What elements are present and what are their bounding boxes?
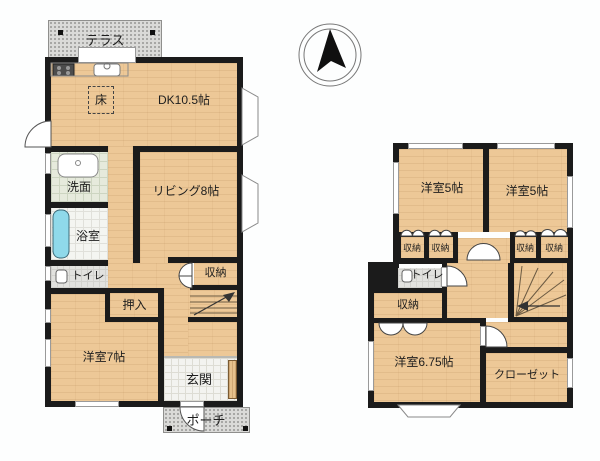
- porch-post: [243, 426, 248, 431]
- window: [45, 153, 51, 174]
- wall: [190, 285, 237, 290]
- living-floor: [140, 152, 237, 257]
- wall: [45, 260, 108, 266]
- compass-north-icon: [299, 24, 361, 86]
- closet-top-label: 収納: [514, 243, 536, 254]
- hall-floor: [188, 322, 237, 358]
- bay-window: [242, 175, 258, 232]
- porch-post: [167, 426, 172, 431]
- bay-window: [242, 88, 258, 145]
- window: [408, 143, 463, 149]
- washroom-label: 洗面: [53, 180, 105, 194]
- landing-floor: [458, 238, 510, 264]
- western675-label: 洋室6.75帖: [376, 354, 472, 369]
- window: [45, 214, 51, 247]
- wall: [168, 257, 243, 263]
- storage1f-label: 収納: [194, 267, 237, 280]
- door-opening: [45, 121, 51, 147]
- terrace-post: [58, 30, 63, 35]
- window: [75, 401, 119, 407]
- wall: [374, 288, 447, 293]
- closet-top-label: 収納: [428, 243, 453, 254]
- wall: [133, 146, 243, 152]
- entrance-step: [164, 356, 237, 358]
- wall: [368, 402, 573, 408]
- wall: [45, 288, 111, 294]
- stairs2f-floor: [514, 263, 567, 317]
- wall: [133, 146, 140, 263]
- hall-floor: [164, 288, 190, 317]
- hall2f-floor: [486, 322, 567, 347]
- window: [45, 309, 51, 323]
- living-label: リビング8帖: [134, 183, 238, 198]
- terrace-post: [150, 30, 155, 35]
- wall: [508, 317, 573, 322]
- entrance-door-opening: [180, 401, 204, 407]
- window: [567, 358, 573, 388]
- wall: [237, 57, 243, 407]
- stairs1f-floor: [190, 290, 237, 317]
- shoe-cabinet: [228, 360, 237, 399]
- wall: [508, 263, 514, 322]
- closet-top-label: 収納: [540, 243, 568, 254]
- door-opening: [480, 326, 486, 346]
- toilet2f-label: トイレ: [410, 269, 444, 282]
- western5-left-label: 洋室5帖: [403, 180, 481, 195]
- hall2f-floor: [447, 263, 508, 318]
- corridor-floor: [108, 146, 133, 263]
- western7-label: 洋室7帖: [58, 349, 150, 365]
- wall: [480, 347, 573, 353]
- terrace-label: テラス: [70, 32, 140, 48]
- toilet1f-label: トイレ: [66, 270, 110, 283]
- porch-label: ポーチ: [178, 412, 234, 428]
- oshiire-label: 押入: [109, 297, 160, 312]
- window: [497, 143, 555, 149]
- wall: [45, 202, 108, 208]
- wall: [374, 318, 446, 323]
- closet-room-label: クローゼット: [487, 368, 567, 382]
- western5-right-label: 洋室5帖: [487, 183, 567, 198]
- floor-plan-page: テラス 床 DK10.5帖 洗面 リビング8帖 浴室 トイレ 収納 押入 洋室7…: [0, 0, 600, 461]
- bath-label: 浴室: [68, 229, 108, 243]
- storage2f-label: 収納: [386, 299, 430, 312]
- dk-label: DK10.5帖: [135, 92, 233, 108]
- window: [368, 341, 374, 391]
- wall: [45, 146, 108, 152]
- wall: [133, 257, 140, 263]
- wall: [188, 317, 243, 322]
- window: [567, 176, 573, 228]
- hall-floor: [164, 317, 188, 358]
- terrace-step: [78, 47, 136, 63]
- floor-hatch-label: 床: [88, 92, 114, 108]
- washroom-floor: [51, 152, 108, 202]
- hall-floor: [108, 263, 190, 288]
- window: [45, 266, 51, 281]
- closet-top-label: 収納: [400, 243, 424, 254]
- window: [45, 339, 51, 367]
- window: [393, 162, 399, 214]
- entrance-label: 玄関: [172, 371, 226, 387]
